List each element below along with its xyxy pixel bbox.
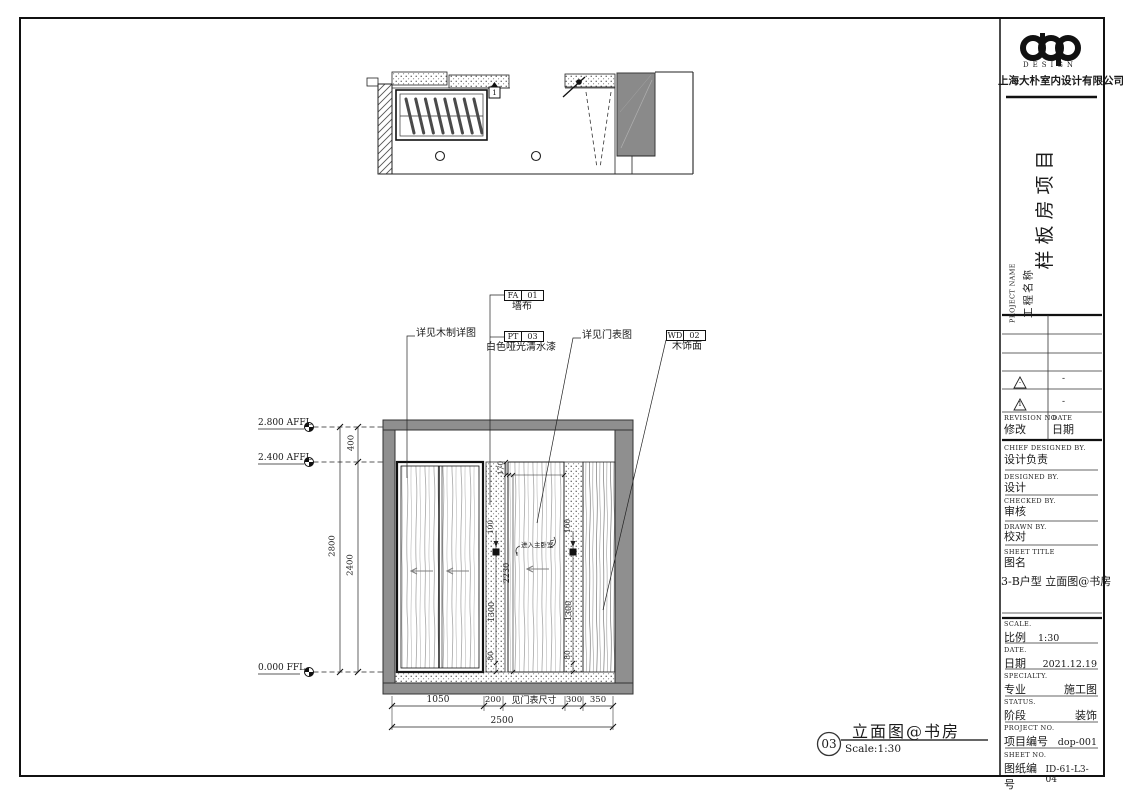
chief-designed-by-cn: 设计负责 (1004, 454, 1048, 466)
dim-350: 350 (590, 696, 606, 705)
callout-wd02-code: WD (667, 331, 684, 340)
dim-200: 200 (485, 696, 501, 705)
scale-row: 比例 1:30 (1004, 629, 1097, 645)
sheet-title-value: 3-B户型 立面图@书房 (1001, 576, 1103, 588)
specialty-row: 专业 施工图 (1004, 681, 1097, 697)
project-title: 样板房项目 (1036, 144, 1056, 269)
dim-170: 170 (497, 461, 505, 475)
date-cn: 日期 (1004, 655, 1026, 671)
specialty-value: 施工图 (1064, 681, 1097, 697)
dim-100-right: 100 (564, 519, 572, 533)
status-value: 装饰 (1075, 707, 1097, 723)
dim-1050: 1050 (427, 696, 450, 705)
date-value: 2021.12.19 (1043, 659, 1097, 670)
checked-by-label: CHECKED BY. (1004, 498, 1056, 505)
project-no-cn: 项目编号 (1004, 733, 1048, 749)
callout-pt03-code: PT (505, 332, 522, 341)
scale-cn: 比例 (1004, 629, 1026, 645)
revision-mark-lower: 1 (1014, 401, 1026, 408)
specialty-cn: 专业 (1004, 681, 1026, 697)
dim-2800: 2800 (329, 535, 338, 557)
designed-by-cn: 设计 (1004, 482, 1026, 494)
project-name-label-en: PROJECT NAME (1010, 263, 1017, 323)
cad-linework (0, 0, 1123, 794)
level-2800: 2.800 AFFL (258, 419, 312, 428)
dim-2400: 2400 (347, 554, 356, 576)
dim-400: 400 (348, 435, 357, 451)
status-row: 阶段 装饰 (1004, 707, 1097, 723)
checked-by-cn: 审核 (1004, 506, 1026, 518)
sheet-title-cn: 图名 (1004, 557, 1026, 569)
sheet-no-value: ID-61-L3-04 (1045, 765, 1097, 785)
callout-pt03-name: 白色哑光清水漆 (486, 343, 556, 354)
sheet-no-label: SHEET NO. (1004, 752, 1046, 759)
date-label: DATE. (1004, 647, 1027, 654)
dim-300: 300 (566, 696, 582, 705)
callout-fa01-name: 墙布 (512, 302, 532, 313)
dim-door-schedule: 见门表尺寸 (511, 697, 556, 706)
note-wood-detail: 详见木制详图 (416, 329, 476, 340)
callout-fa01: FA 01 (504, 290, 544, 301)
designed-by-label: DESIGNED BY. (1004, 474, 1059, 481)
project-no-row: 项目编号 dop-001 (1004, 733, 1097, 749)
revision-date-label-en: DATE (1052, 415, 1072, 422)
project-name-label-cn: 工程名称 (1023, 268, 1034, 318)
drawn-by-cn: 校对 (1004, 531, 1026, 543)
brand-design-sub: DESIGN (1022, 62, 1078, 69)
dim-2230: 2230 (503, 563, 511, 583)
status-label: STATUS. (1004, 699, 1036, 706)
callout-fa01-num: 01 (522, 291, 543, 300)
revision-date-upper: - (1062, 375, 1065, 384)
scale-value: 1:30 (1038, 633, 1059, 644)
chief-designed-by-label: CHIEF DESIGNED BY. (1004, 445, 1086, 452)
scale-label: SCALE. (1004, 621, 1032, 628)
revision-mark-upper: - (1014, 379, 1026, 386)
drawing-sheet: DESIGN 上海大朴室内设计有限公司 样板房项目 PROJECT NAME 工… (0, 0, 1123, 794)
sheet-title-label: SHEET TITLE (1004, 549, 1055, 556)
view-number: 03 (818, 738, 840, 751)
callout-wd02-num: 02 (684, 331, 705, 340)
door-destination-label: 进入主卧室 (521, 542, 554, 549)
specialty-label: SPECIALTY. (1004, 673, 1047, 680)
revision-no-label-en: REVISION NO (1004, 415, 1056, 422)
company-name: 上海大朴室内设计有限公司 (998, 76, 1104, 87)
revision-no-label-cn: 修改 (1004, 424, 1026, 436)
level-2400: 2.400 AFFL (258, 454, 312, 463)
level-0000: 0.000 FFL (258, 664, 305, 673)
callout-pt03: PT 03 (504, 331, 544, 342)
view-scale: Scale:1:30 (845, 744, 901, 755)
callout-fa01-code: FA (505, 291, 522, 300)
status-cn: 阶段 (1004, 707, 1026, 723)
revision-date-label-cn: 日期 (1052, 424, 1074, 436)
date-row: 日期 2021.12.19 (1004, 655, 1097, 671)
sheet-no-row: 图纸编号 ID-61-L3-04 (1004, 760, 1097, 792)
project-no-value: dop-001 (1058, 737, 1097, 748)
dim-100-left: 100 (487, 520, 495, 534)
dim-2500: 2500 (491, 717, 514, 726)
callout-wd02-name: 木饰面 (672, 342, 702, 353)
dim-1300-right: 1300 (565, 601, 573, 621)
callout-pt03-num: 03 (522, 332, 543, 341)
view-title: 立面图@书房 (852, 724, 960, 741)
revision-date-lower: - (1062, 398, 1065, 407)
project-no-label: PROJECT NO. (1004, 725, 1054, 732)
dim-80-left: 80 (487, 651, 495, 661)
note-door-schedule: 详见门表图 (582, 331, 632, 342)
callout-wd02: WD 02 (666, 330, 706, 341)
plan-section-marker: 1 (489, 89, 500, 97)
dim-1300-left: 1300 (488, 602, 496, 622)
sheet-no-cn: 图纸编号 (1004, 760, 1045, 792)
dim-80-right: 80 (564, 650, 572, 660)
